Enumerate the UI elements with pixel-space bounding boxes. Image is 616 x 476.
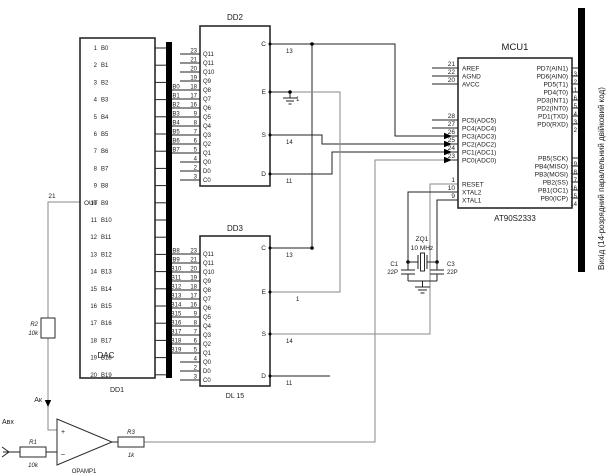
r2-ref: R2 (30, 322, 38, 328)
mcu-pin-number: 5 (574, 104, 578, 110)
dd3-s-wire (270, 184, 458, 334)
dd1-pin-label: B3 (101, 98, 109, 104)
pin-label: C0 (203, 378, 211, 384)
bus-tap-label: B18 (171, 339, 182, 345)
schematic-page: 1B02B13B24B35B46B57B68B79B810B911B1012B1… (0, 0, 616, 476)
bus-tap-label: B16 (171, 321, 182, 327)
mcu-pin-number: 25 (448, 137, 456, 144)
pin-number: 19 (190, 76, 197, 82)
dd2-title: DD2 (227, 13, 244, 22)
pin-number: 13 (286, 49, 293, 55)
bus-tap-label: B19 (171, 348, 182, 354)
mcu-pin-label: PB0(ICP) (541, 196, 568, 203)
output-bus (578, 8, 585, 272)
dd3-title: DD3 (227, 224, 244, 233)
pin-number: 20 (190, 267, 197, 273)
mcu-pin-label: RESET (462, 182, 484, 189)
pin-number: 16 (190, 303, 197, 309)
dd1-pin-label: B7 (101, 166, 109, 172)
mcu-pin-label: PB4(MISO) (535, 164, 568, 171)
c1-ref: C1 (390, 262, 398, 268)
mcu-pin-label: PD1(TXD) (538, 114, 568, 121)
sar-adc-schematic: 1B02B13B24B35B46B57B68B79B810B911B1012B1… (0, 0, 616, 476)
mcu-pin-label: PC3(ADC3) (462, 134, 496, 141)
pin-number: 19 (190, 276, 197, 282)
pin-number: 13 (286, 253, 293, 259)
pin-number: 1 (296, 97, 300, 103)
mcu-pin-number: 16 (570, 186, 577, 192)
dd1-pin-number: 19 (90, 356, 97, 362)
mcu-pin-number: 23 (448, 153, 456, 160)
pin-label: Q6 (203, 106, 212, 112)
dd1-pin-number: 14 (90, 270, 97, 276)
dd1-pin-number: 13 (90, 252, 97, 258)
crystal-circuit: ZQ1 10 MHz C1 22P C3 22P (387, 236, 457, 293)
mcu-pin-label: PD5(T1) (543, 82, 568, 89)
mcu-pin-number: 17 (570, 178, 577, 184)
mcu-pin-number: 1 (451, 177, 455, 184)
dd1-pin-label: B13 (101, 270, 112, 276)
r3-value: 1k (128, 453, 135, 459)
pin-label: Q4 (203, 324, 212, 330)
mcu-pin-label: PB3(MOSI) (535, 172, 568, 179)
dd1-pin-label: B6 (101, 149, 109, 155)
pin-label: Q8 (203, 88, 212, 94)
pin-number: 23 (190, 249, 197, 255)
dd1-pin-label: B16 (101, 321, 112, 327)
r1-value: 10k (28, 463, 39, 469)
xtal-ref: ZQ1 (416, 236, 429, 243)
pin-node (269, 43, 272, 46)
mcu-pin-label: PD6(AIN0) (537, 74, 568, 81)
bus-tap-label: B1 (172, 94, 180, 100)
bus-tap-label: B13 (171, 294, 182, 300)
mcu-pin-label: PD3(INT1) (537, 98, 568, 105)
pin-node (269, 173, 272, 176)
bus-tap-label: B10 (171, 267, 182, 273)
bus-tap-label: B15 (171, 312, 182, 318)
bus-tap-label: B3 (172, 112, 180, 118)
dd1-pin-number: 11 (91, 218, 98, 224)
mcu-pin-label: PC4(ADC4) (462, 126, 496, 133)
dd1-pin-label: B12 (101, 252, 112, 258)
mcu-pin-label: PD2(INT0) (537, 106, 568, 113)
pin-label: Q8 (203, 288, 212, 294)
bus-tap-label: B6 (172, 139, 180, 145)
mcu-pin-label: AGND (462, 74, 481, 81)
dd3-part: DL 15 (226, 393, 245, 400)
mcu-pin-label: PB2(SS) (543, 180, 568, 187)
pin-number: 20 (190, 67, 197, 73)
pin-label: D0 (203, 369, 211, 375)
opamp-ref: OPAMP1 (72, 469, 97, 475)
pin-number: 1 (296, 297, 300, 303)
pin-label: C (261, 41, 266, 48)
mcu-pin-number: 2 (574, 128, 578, 134)
dd1-pin-label: B10 (101, 218, 112, 224)
mcu-pin-number: 6 (574, 96, 578, 102)
bus-tap-label: B7 (172, 148, 180, 154)
pin-number: 18 (190, 85, 197, 91)
mcu-pin-label: XTAL1 (462, 198, 482, 205)
ground-symbol-dd2 (283, 98, 297, 104)
opamp-plus: + (61, 429, 65, 436)
mcu-pin-number: 15 (570, 194, 577, 200)
pin-number: 14 (286, 140, 293, 146)
pin-label: Q0 (203, 160, 212, 166)
bus-tap-label: B17 (171, 330, 182, 336)
pin-label: Q3 (203, 333, 212, 339)
mcu-pin-number: 11 (571, 88, 578, 94)
mcu-pin-number: 14 (570, 202, 577, 208)
pin-label: D (261, 171, 266, 178)
pin-number: 18 (190, 285, 197, 291)
pin-number: 17 (190, 94, 197, 100)
pin-label: S (262, 331, 267, 338)
pin-label: Q11 (203, 252, 215, 258)
output-bus-note: Вихід (14-розрядний паралельний двійкови… (597, 87, 606, 270)
dd1-out-label: OUT (84, 200, 98, 207)
c1-value: 22P (387, 270, 398, 276)
dd1-pin-number: 15 (90, 287, 97, 293)
mcu-pin-number: 22 (448, 69, 456, 76)
mcu-pin-label: AREF (462, 66, 479, 73)
mcu-pin-number: 10 (448, 185, 456, 192)
ground-symbol-xtal (415, 287, 430, 293)
pin-label: Q6 (203, 306, 212, 312)
dd1-pin-label: B5 (101, 132, 109, 138)
mcu-pin-label: PC2(ADC2) (462, 142, 496, 149)
mcu-pin-label: PD4(T0) (543, 90, 568, 97)
mcu-pin-label: AVCC (462, 82, 480, 89)
pin-label: D0 (203, 169, 211, 175)
pin-number: 11 (286, 179, 293, 185)
bus-tap-label: B5 (172, 130, 180, 136)
pin-label: Q1 (203, 351, 212, 357)
mcu-pin-number: 27 (448, 121, 456, 128)
enable-ground-wire (270, 92, 290, 98)
mcu-pin-number: 12 (570, 80, 577, 86)
pin-label: Q5 (203, 115, 212, 121)
pin-label: Q9 (203, 279, 212, 285)
bus-tap-label: B2 (172, 103, 180, 109)
dd1-out-pin-number: 21 (48, 193, 56, 200)
pin-label: E (262, 89, 267, 96)
dd1-pin-label: B8 (101, 184, 109, 190)
pin-label: Q9 (203, 79, 212, 85)
dac-data-bus (166, 42, 172, 378)
pin-label: Q10 (203, 70, 215, 76)
mcu-title: MCU1 (502, 42, 529, 53)
mcu-pin-label: PC0(ADC0) (462, 158, 496, 165)
pin-label: Q3 (203, 133, 212, 139)
pin-label: Q10 (203, 270, 215, 276)
dd1-pin-number: 20 (90, 373, 97, 379)
pin-node (269, 375, 272, 378)
mcu-pin-number: 28 (448, 113, 456, 120)
pin-label: Q4 (203, 124, 212, 130)
mcu-pin-label: PB5(SCK) (538, 156, 568, 163)
pin-label: Q11 (203, 61, 215, 67)
bus-tap-label: B0 (172, 85, 180, 91)
dd1-pin-number: 16 (90, 304, 97, 310)
pin-node (269, 134, 272, 137)
bus-tap-label: B11 (171, 276, 182, 282)
opamp-triangle (57, 419, 112, 465)
dd1-pin-label: B14 (101, 287, 112, 293)
dd1-pin-label: B15 (101, 304, 112, 310)
mcu-pin-label: PC5(ADC5) (462, 118, 496, 125)
bus-tap-label: B4 (172, 121, 180, 127)
r1-body (20, 447, 46, 457)
pin-number: 14 (286, 339, 293, 345)
r1-ref: R1 (29, 440, 37, 446)
pin-node (269, 247, 272, 250)
opamp-minus: – (61, 451, 65, 458)
pin-label: Q2 (203, 342, 212, 348)
pin-number: 23 (190, 49, 197, 55)
pin-number: 11 (286, 381, 293, 387)
xtal-freq: 10 MHz (411, 245, 433, 252)
mcu-pin-number: 24 (448, 145, 456, 152)
bus-tap-label: B9 (172, 258, 180, 264)
c3-value: 22P (447, 270, 458, 276)
pin-node (269, 91, 272, 94)
pin-number: 17 (190, 294, 197, 300)
r3-ref: R3 (127, 430, 135, 436)
bus-tap-label: B14 (171, 303, 182, 309)
mcu-pin-number: 4 (574, 112, 578, 118)
pin-label: Q11 (203, 52, 215, 58)
dd3-enable-wire (270, 92, 340, 292)
pin-label: D (261, 373, 266, 380)
mcu-pin-number: 3 (574, 120, 578, 126)
pin-label: S (262, 132, 267, 139)
pin-label: Q7 (203, 97, 212, 103)
dd1-pin-label: B4 (101, 115, 109, 121)
pin-label: Q5 (203, 315, 212, 321)
dd1-pin-number: 12 (90, 235, 97, 241)
mcu-part: AT90S2333 (494, 214, 536, 223)
r2-value: 10k (28, 331, 39, 337)
r2-body (41, 318, 55, 338)
mcu-pin-number: 13 (570, 72, 577, 78)
clock-branch (270, 44, 312, 248)
pin-node (269, 333, 272, 336)
c3-ref: C3 (447, 262, 455, 268)
bus-tap-label: B8 (172, 249, 180, 255)
dd1-pin-label: B17 (101, 338, 112, 344)
dd1-pin-label: B19 (101, 373, 112, 379)
mcu-pin-number: 26 (448, 129, 456, 136)
pin-number: 21 (190, 258, 197, 264)
feedback-wire (48, 202, 80, 430)
vin-label: Авх (2, 419, 14, 426)
dd1-pin-label: B11 (101, 235, 112, 241)
pin-label: Q2 (203, 142, 212, 148)
pin-label: Q11 (203, 261, 215, 267)
mcu-pin-label: PD0(RXD) (537, 122, 568, 129)
dd1-pin-label: B9 (101, 201, 109, 207)
vfb-arrow (45, 400, 51, 407)
pin-label: Q1 (203, 151, 212, 157)
pin-label: E (262, 289, 267, 296)
mcu-pin-label: XTAL2 (462, 190, 482, 197)
dd1-pin-number: 18 (90, 338, 97, 344)
dd1-pin-number: 17 (90, 321, 97, 327)
dd1-pin-label: B2 (101, 80, 109, 86)
dd1-pin-label: B0 (101, 46, 109, 52)
mcu-pin-label: PC1(ADC1) (462, 150, 496, 157)
mcu-pin-number: 19 (570, 162, 577, 168)
pin-label: Q7 (203, 297, 212, 303)
crystal-body (421, 253, 425, 271)
vfb-label: Ак (34, 397, 43, 404)
mcu-pin-number: 18 (570, 170, 577, 176)
junction-dots (288, 42, 439, 264)
mcu-pin-label: PB1(OC1) (538, 188, 568, 195)
mcu-pin-number: 21 (448, 61, 456, 68)
pin-label: C (261, 245, 266, 252)
r3-body (118, 437, 144, 447)
d-net (270, 152, 452, 174)
pin-label: C0 (203, 178, 211, 184)
mcu-pin-label: PD7(AIN1) (537, 66, 568, 73)
pin-label: Q0 (203, 360, 212, 366)
mcu-pin-number: 20 (448, 77, 456, 84)
clock-net (270, 44, 452, 136)
dd1-ref: DD1 (110, 387, 124, 394)
bus-tap-label: B12 (171, 285, 182, 291)
pin-number: 16 (190, 103, 197, 109)
xtal1-wire (437, 200, 458, 262)
mcu-pin-number: 9 (451, 193, 455, 200)
dd1-func-label: DAC (98, 351, 115, 360)
pin-node (269, 291, 272, 294)
dd1-pin-label: B1 (101, 63, 109, 69)
pin-number: 21 (190, 58, 197, 64)
